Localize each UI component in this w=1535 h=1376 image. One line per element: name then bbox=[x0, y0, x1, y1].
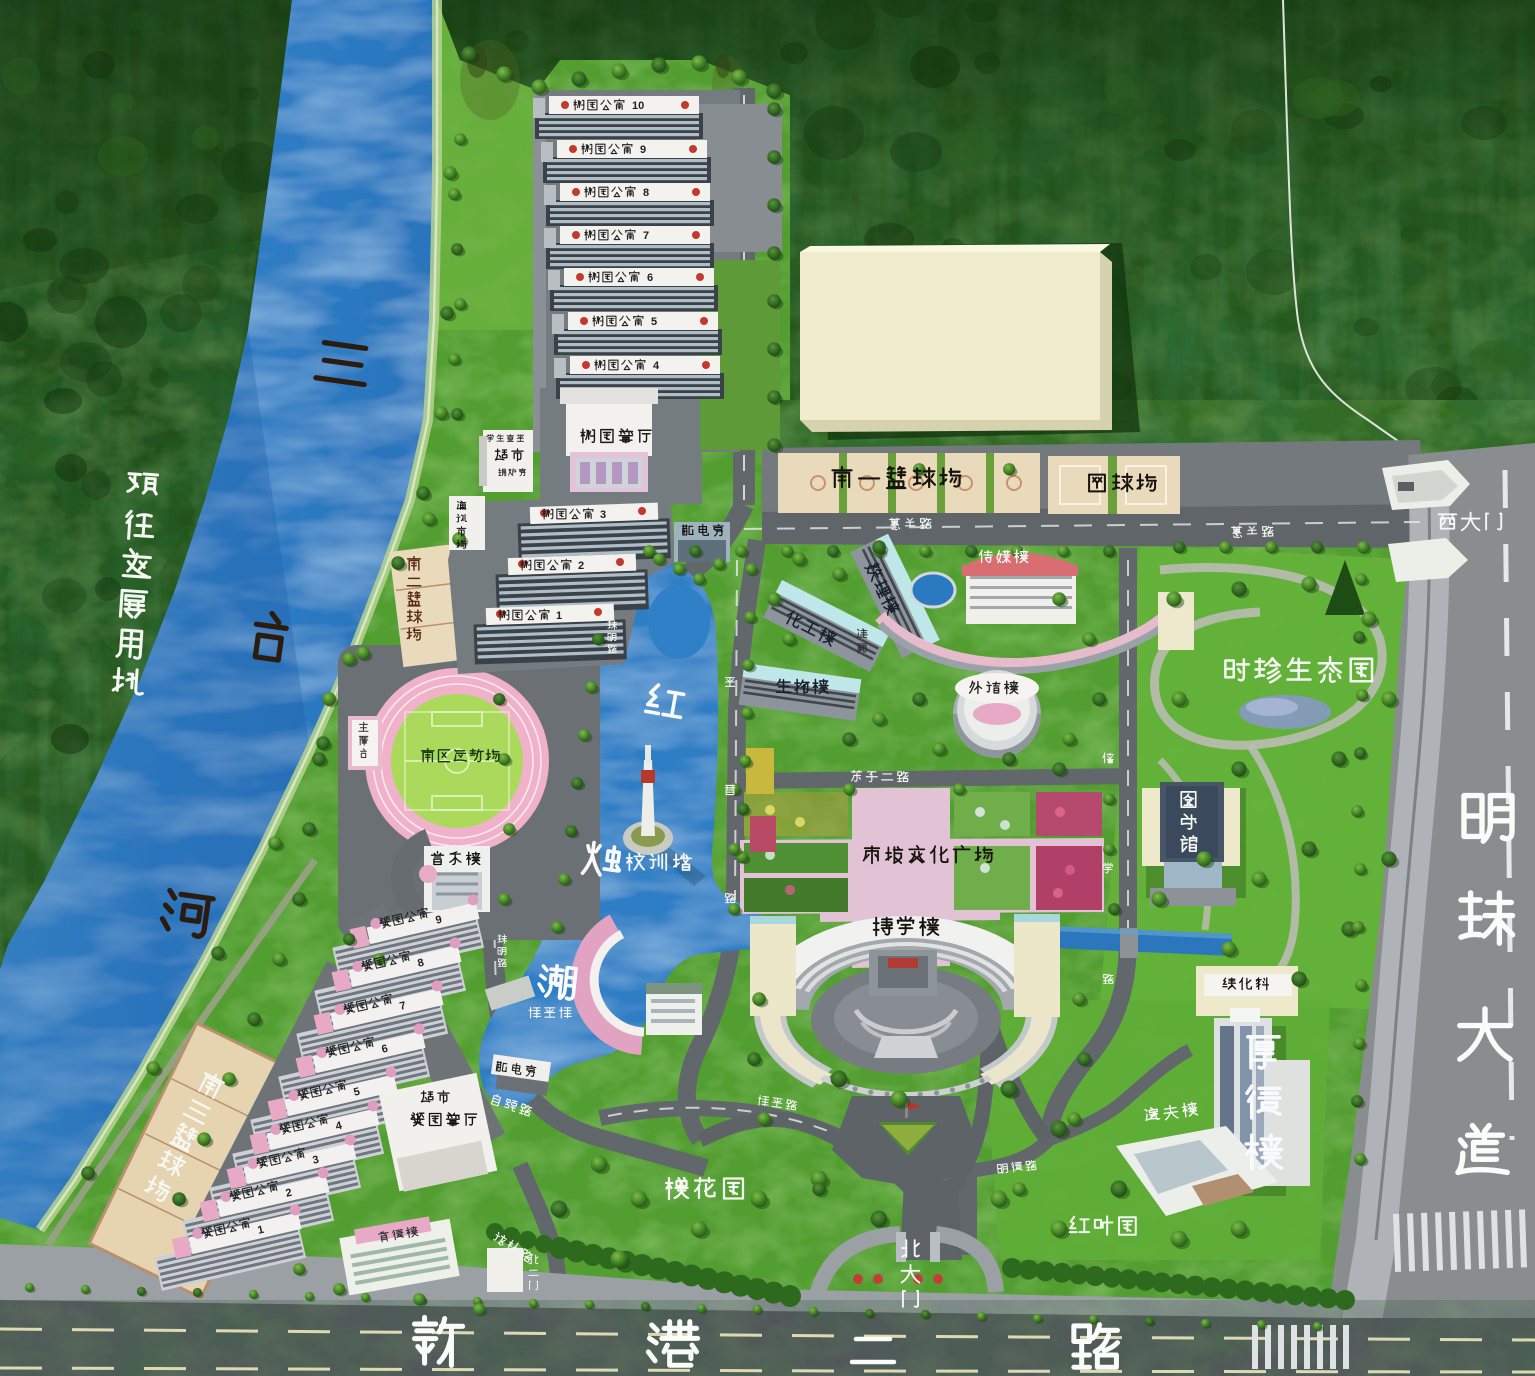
svg-text:3: 3 bbox=[600, 509, 606, 521]
svg-text:2: 2 bbox=[578, 560, 584, 572]
svg-text:8: 8 bbox=[643, 187, 649, 199]
svg-text:5: 5 bbox=[651, 316, 657, 328]
svg-text:9: 9 bbox=[640, 144, 646, 156]
svg-text:1: 1 bbox=[556, 610, 562, 622]
svg-text:10: 10 bbox=[632, 100, 644, 112]
svg-text:4: 4 bbox=[653, 360, 660, 372]
svg-text:6: 6 bbox=[647, 272, 653, 284]
svg-text:7: 7 bbox=[643, 230, 649, 242]
